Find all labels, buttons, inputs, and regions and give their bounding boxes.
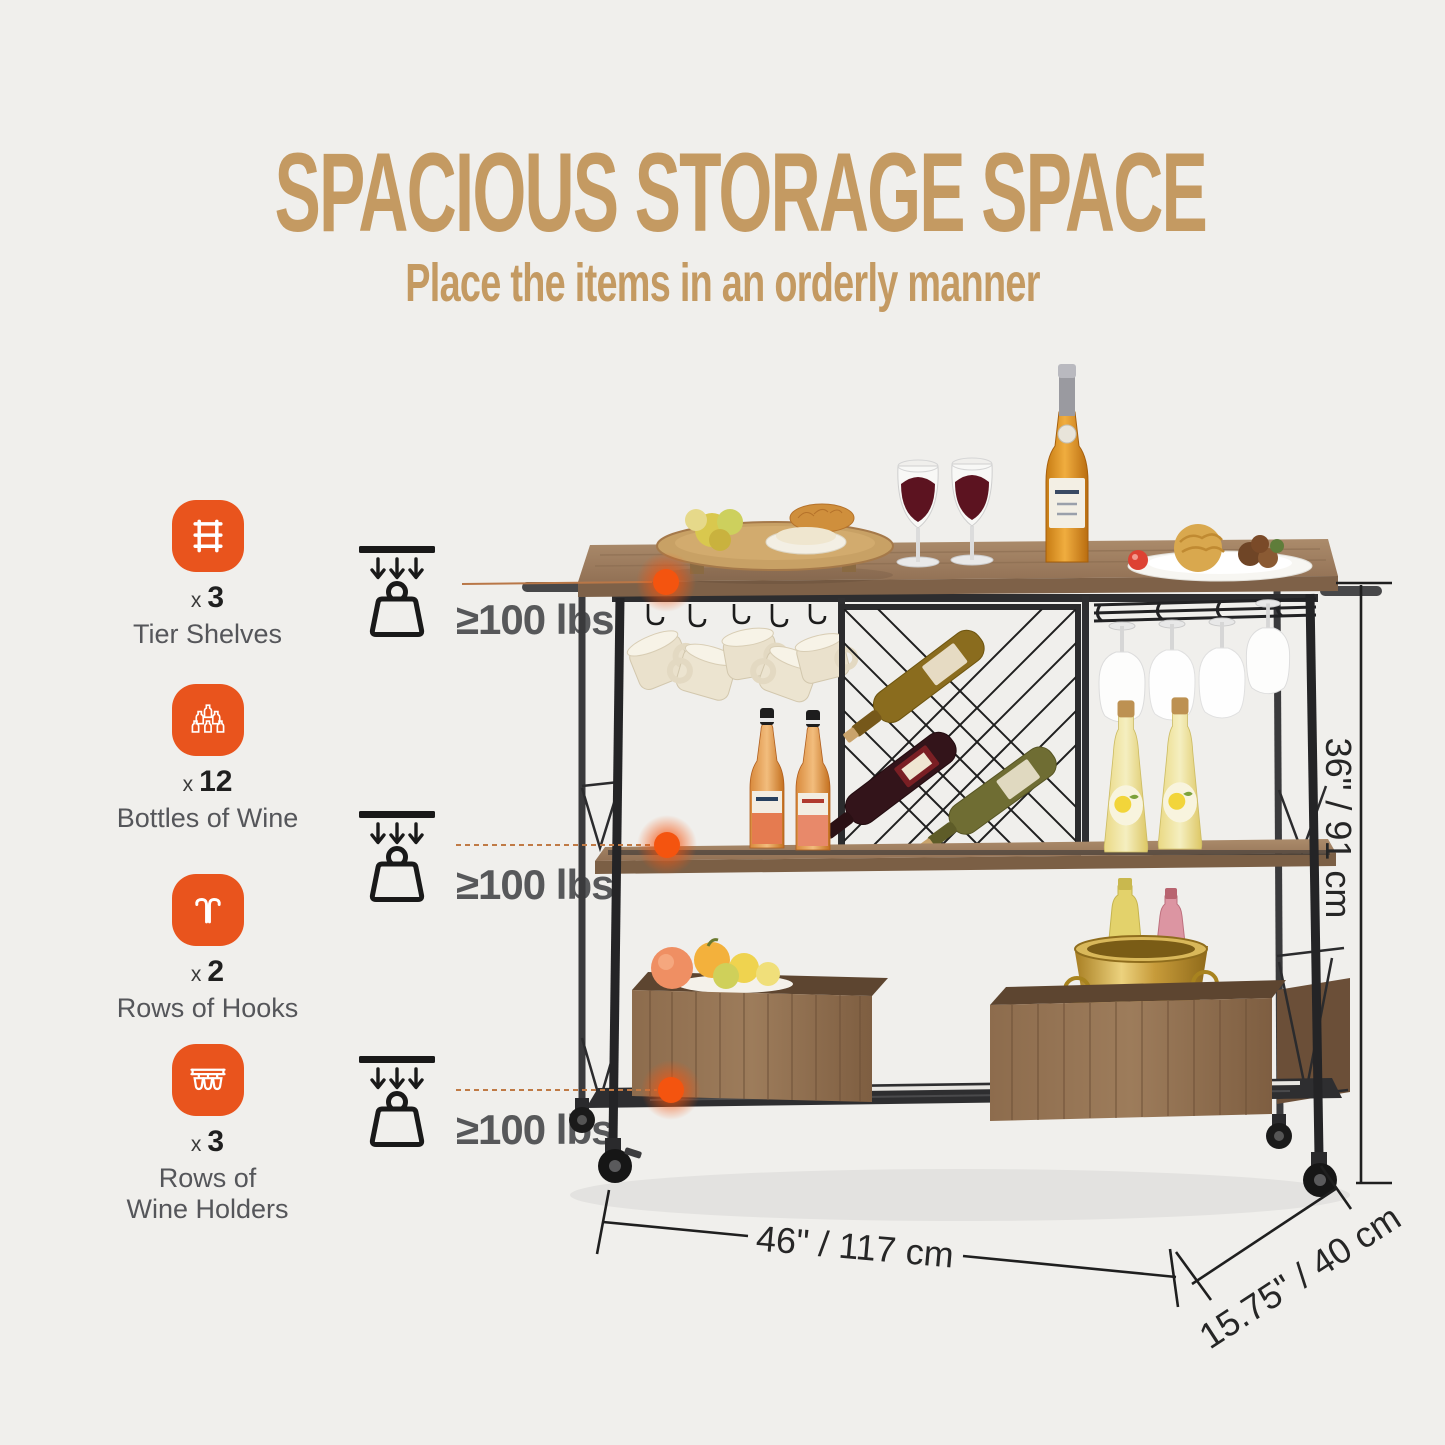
feature-label: Rows of Hooks: [100, 993, 315, 1024]
middle-shelf: [595, 839, 1336, 874]
feature-tier-shelves: x3 Tier Shelves: [100, 500, 315, 650]
hanging-glasses: [194, 1074, 221, 1089]
feature-label: Rows of Wine Holders: [100, 1163, 315, 1225]
caster: [1266, 1114, 1292, 1149]
hanging-mugs: [624, 623, 858, 705]
bucket-crate: [990, 980, 1286, 1121]
caster-locking: [598, 1138, 642, 1183]
product-infographic: SPACIOUS STORAGE SPACE Place the items i…: [0, 0, 1445, 1445]
feature-rows-of-hooks: x2 Rows of Hooks: [100, 874, 315, 1024]
height-dimension-label: 36" / 91 cm: [1317, 738, 1359, 919]
feature-count: x2: [100, 955, 315, 989]
down-arrows-icon: [372, 559, 422, 578]
weight-load-icon: [358, 546, 438, 646]
feature-count: x3: [100, 1125, 315, 1159]
page-title: SPACIOUS STORAGE SPACE: [275, 128, 1171, 257]
divider-post: [1082, 596, 1089, 848]
beer-bottles: [750, 708, 830, 850]
feature-rows-of-wine-holders: x3 Rows of Wine Holders: [100, 1044, 315, 1225]
bottle-cluster: [192, 705, 223, 732]
mug-hook-row: [624, 604, 858, 705]
wine-holder-rows-icon: [172, 1044, 244, 1116]
feature-label: Tier Shelves: [100, 619, 315, 650]
serving-tray: [657, 504, 893, 584]
page-subtitle: Place the items in an orderly manner: [217, 252, 1229, 314]
feature-label: Bottles of Wine: [100, 803, 315, 834]
weight-load-icon: [358, 811, 438, 911]
wine-bottle-top: [1046, 364, 1088, 562]
fruit-crate: [632, 940, 888, 1102]
floor-shadow: [570, 1169, 1350, 1221]
kettlebell-weight-icon: [372, 584, 421, 635]
feature-count: x3: [100, 581, 315, 615]
weight-load-icon: [358, 1056, 438, 1156]
hook-rows-icon: [172, 874, 244, 946]
feature-count: x12: [100, 765, 315, 799]
wine-bottles-icon: [172, 684, 244, 756]
caster: [1303, 1152, 1337, 1197]
feature-bottles-of-wine: x12 Bottles of Wine: [100, 684, 315, 834]
fruits: [651, 940, 780, 989]
tier-shelves-icon: [172, 500, 244, 572]
bar-cart-product-photo: [520, 350, 1400, 1250]
lemonade-bottles: [1104, 697, 1201, 852]
